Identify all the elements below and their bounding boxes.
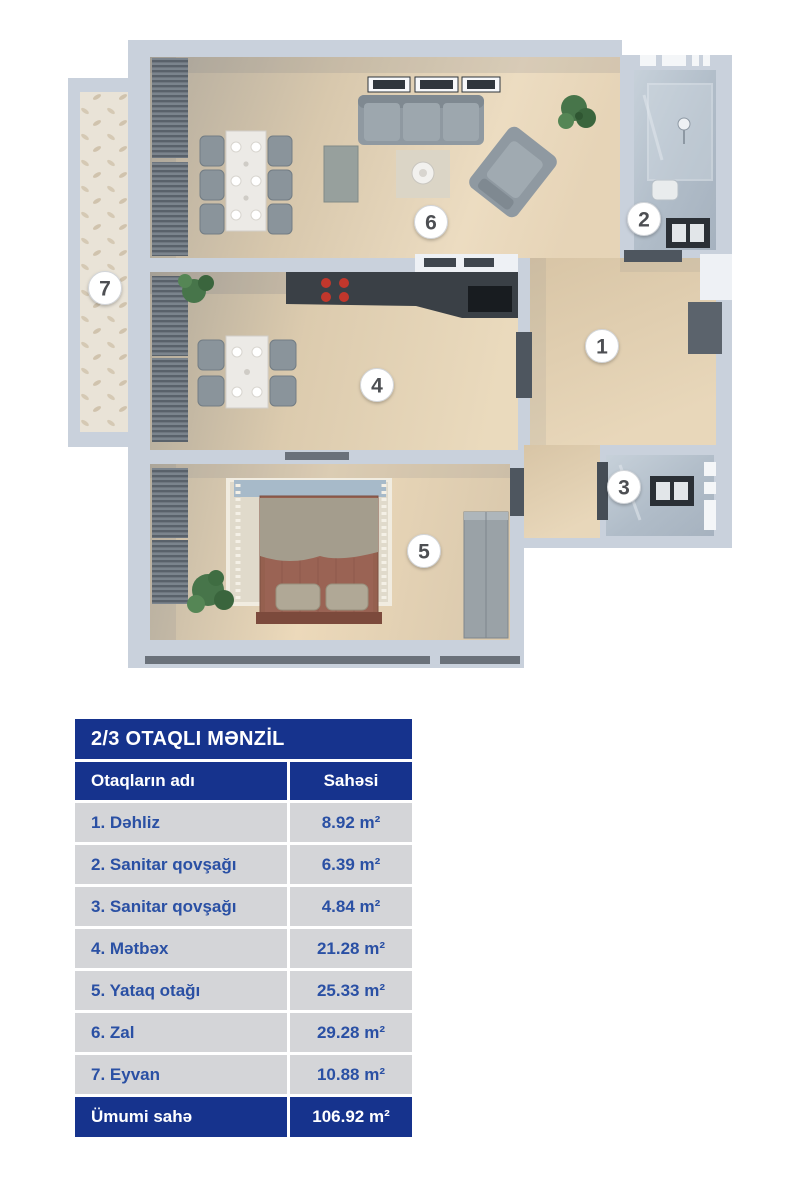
room-area: 4.84 m²	[290, 887, 412, 926]
room-area: 21.28 m²	[290, 929, 412, 968]
table-row: 5. Yataq otağı 25.33 m²	[75, 971, 412, 1010]
kitchen-sink	[468, 286, 512, 312]
bathroom2-door	[624, 250, 682, 262]
svg-text:3: 3	[618, 477, 630, 500]
room-area: 6.39 m²	[290, 845, 412, 884]
room-name: 7. Eyvan	[75, 1055, 287, 1094]
side-table	[324, 146, 358, 202]
svg-text:4: 4	[371, 375, 383, 398]
pillow	[276, 584, 320, 610]
table-row: 1. Dəhliz 8.92 m²	[75, 803, 412, 842]
room-name: 5. Yataq otağı	[75, 971, 287, 1010]
table-row: 2. Sanitar qovşağı 6.39 m²	[75, 845, 412, 884]
room-area: 8.92 m²	[290, 803, 412, 842]
wardrobe	[464, 512, 508, 638]
kitchen-door	[516, 332, 532, 398]
shower-area	[648, 84, 712, 180]
coffee-rug	[396, 150, 450, 198]
entrance-door	[688, 302, 722, 354]
blanket	[260, 498, 378, 561]
room-name: 3. Sanitar qovşağı	[75, 887, 287, 926]
bedroom-door	[510, 468, 524, 516]
shower-head	[678, 118, 690, 130]
floor-plan-image: 1 2 3 4 5 6 7	[0, 0, 805, 700]
room-name: 2. Sanitar qovşağı	[75, 845, 287, 884]
table-title: 2/3 OTAQLI MƏNZİL	[75, 719, 412, 759]
room-area: 10.88 m²	[290, 1055, 412, 1094]
svg-text:7: 7	[99, 278, 111, 301]
svg-text:5: 5	[418, 541, 430, 564]
headboard	[256, 612, 382, 624]
bed	[256, 496, 382, 624]
marker-room-3: 3	[608, 471, 641, 504]
corridor-floor	[524, 445, 600, 538]
svg-text:1: 1	[596, 336, 608, 359]
bathroom3-door	[597, 462, 608, 520]
svg-text:6: 6	[425, 212, 437, 235]
marker-room-1: 1	[586, 330, 619, 363]
marker-room-4: 4	[361, 369, 394, 402]
table-footer-row: Ümumi sahə 106.92 m²	[75, 1097, 412, 1137]
marker-room-5: 5	[408, 535, 441, 568]
balcony-floor	[80, 92, 128, 432]
table-row: 6. Zal 29.28 m²	[75, 1013, 412, 1052]
wall-frames	[368, 77, 500, 92]
total-label: Ümumi sahə	[75, 1097, 287, 1137]
room-name: 4. Mətbəx	[75, 929, 287, 968]
curtains	[152, 58, 188, 604]
pillow	[326, 584, 368, 610]
table-row: 3. Sanitar qovşağı 4.84 m²	[75, 887, 412, 926]
room-name: 1. Dəhliz	[75, 803, 287, 842]
area-table: 2/3 OTAQLI MƏNZİL Otaqların adı Sahəsi 1…	[75, 719, 412, 1137]
room-area: 25.33 m²	[290, 971, 412, 1010]
table-header-row: Otaqların adı Sahəsi	[75, 762, 412, 800]
room-name: 6. Zal	[75, 1013, 287, 1052]
table-row: 7. Eyvan 10.88 m²	[75, 1055, 412, 1094]
column-header-room-names: Otaqların adı	[75, 762, 287, 800]
svg-text:2: 2	[638, 209, 650, 232]
sofa	[358, 95, 484, 145]
marker-room-7: 7	[89, 272, 122, 305]
table-row: 4. Mətbəx 21.28 m²	[75, 929, 412, 968]
marker-room-6: 6	[415, 206, 448, 239]
total-area: 106.92 m²	[290, 1097, 412, 1137]
floor-plan-page: 1 2 3 4 5 6 7	[0, 0, 805, 1200]
column-header-area: Sahəsi	[290, 762, 412, 800]
marker-room-2: 2	[628, 203, 661, 236]
toilet	[652, 180, 678, 200]
room-area: 29.28 m²	[290, 1013, 412, 1052]
dining-set-living	[200, 131, 292, 234]
